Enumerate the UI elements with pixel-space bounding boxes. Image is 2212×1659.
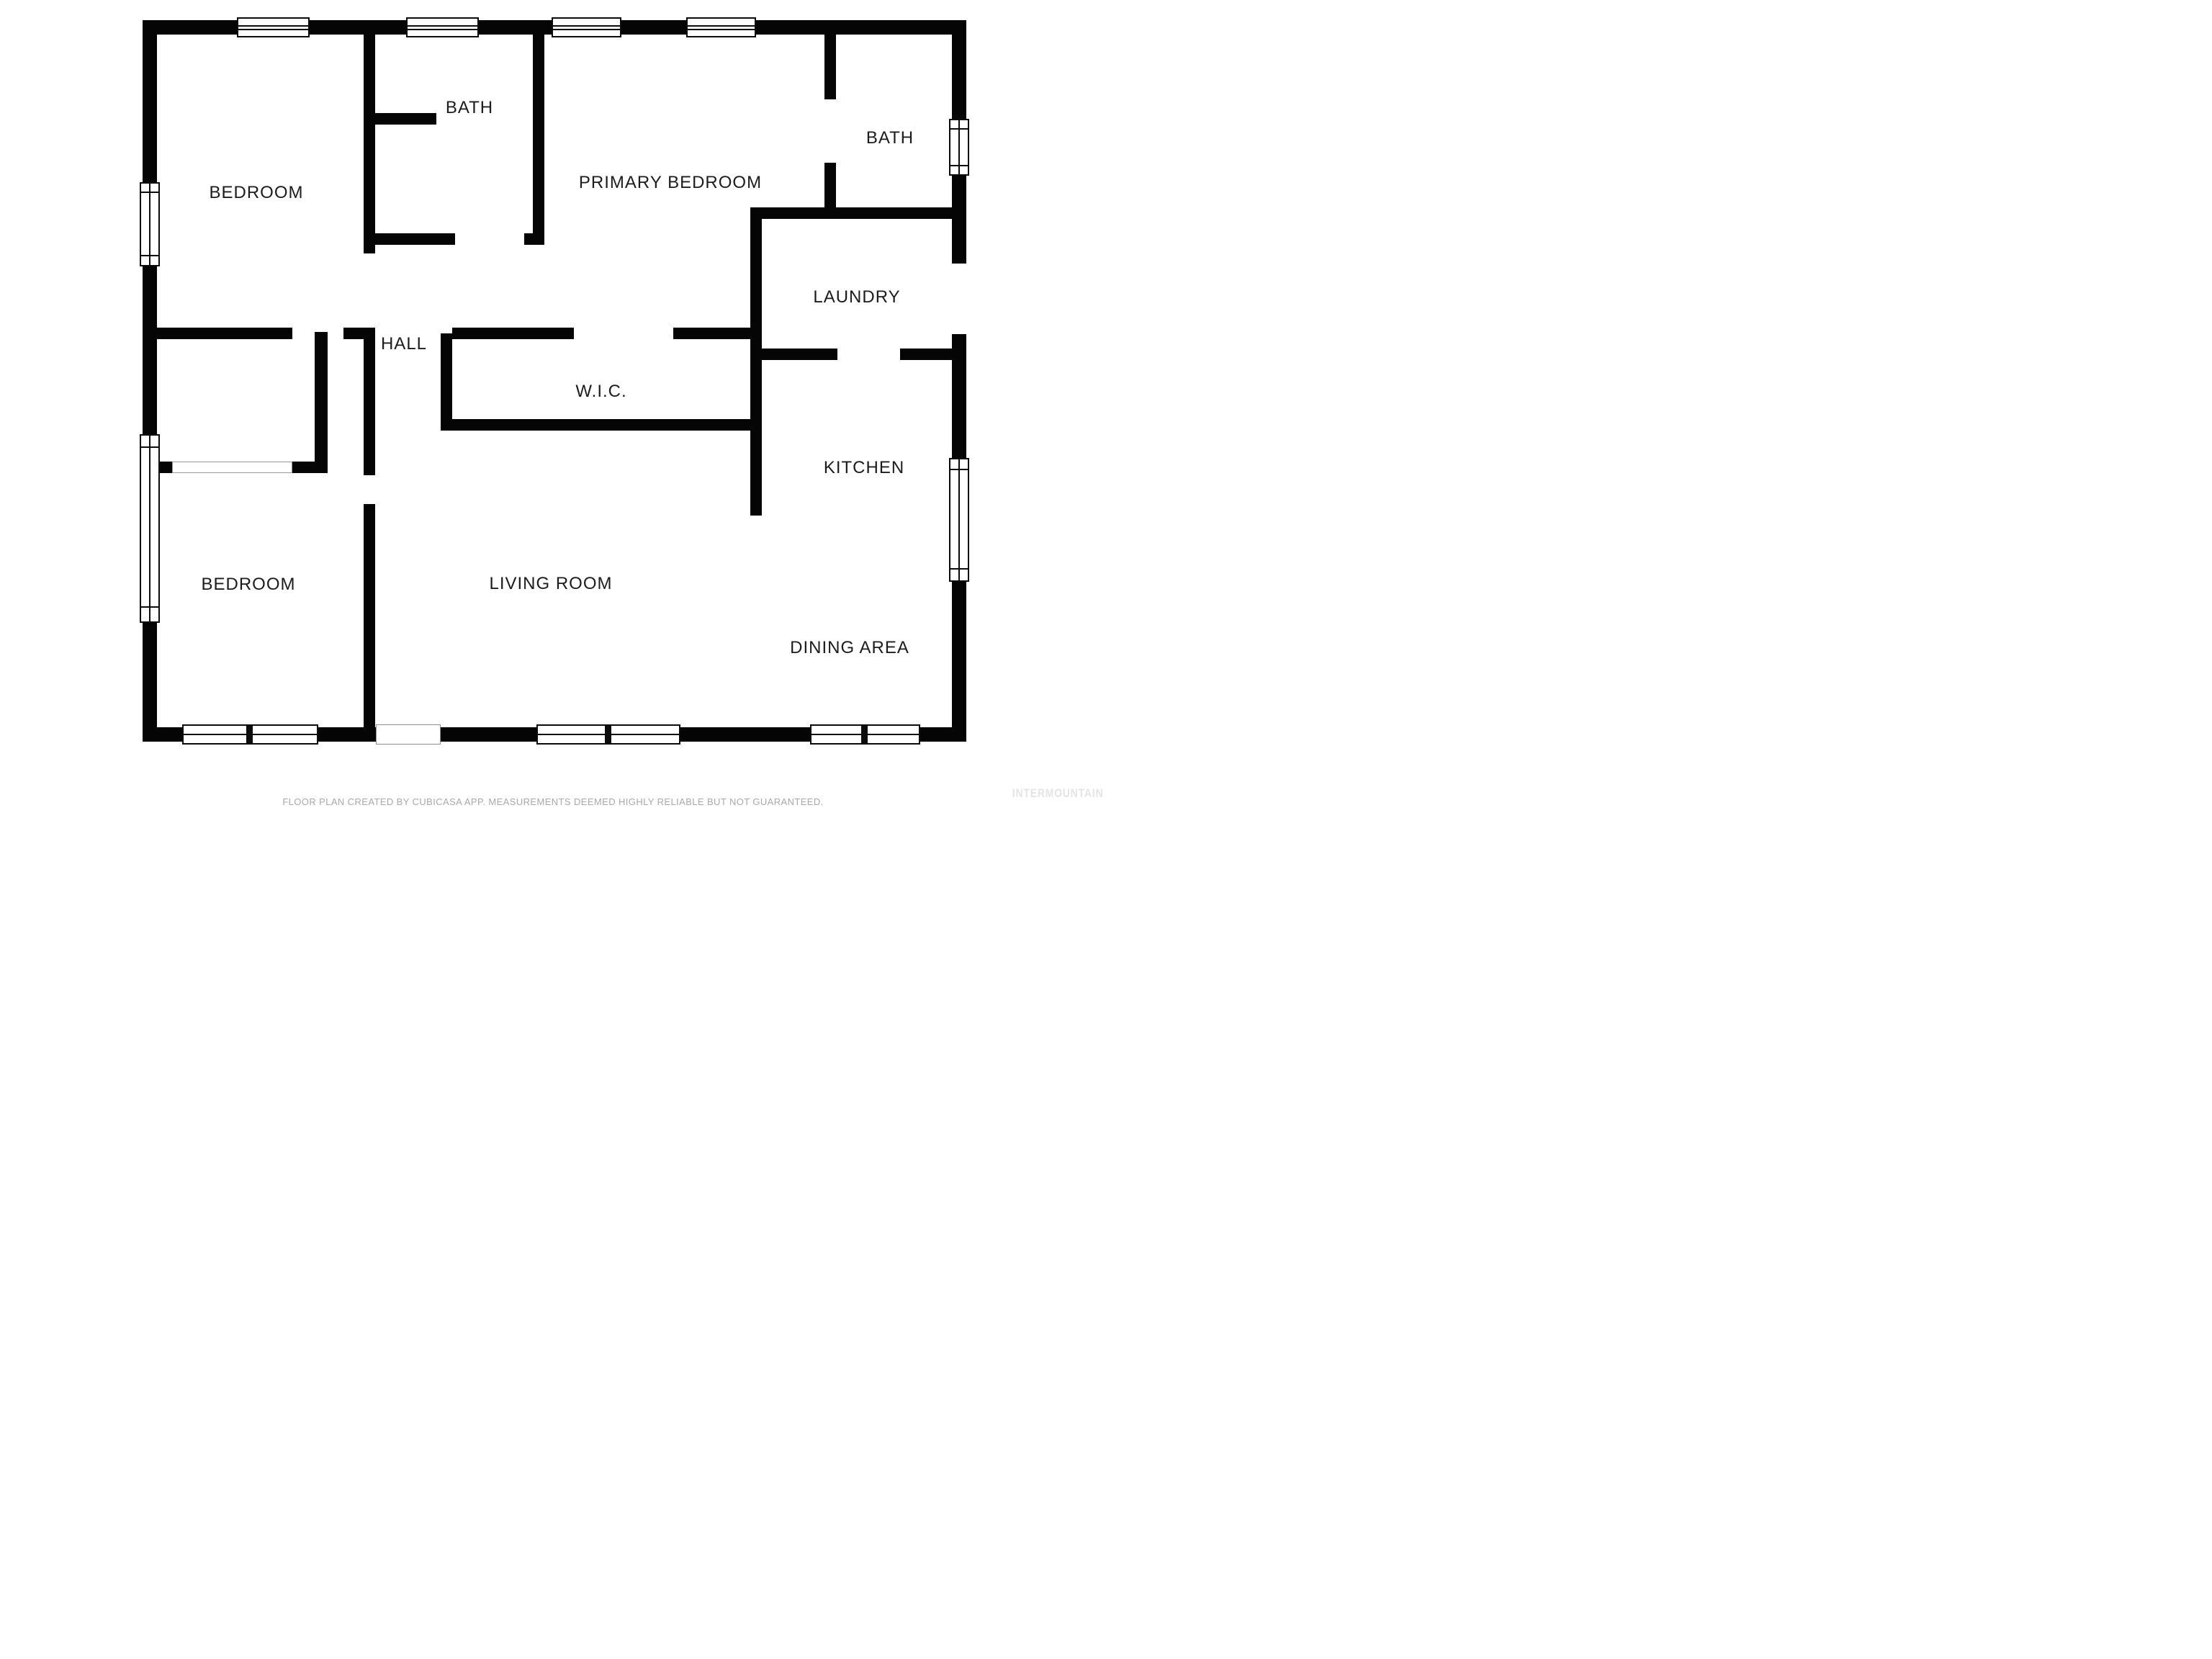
room-label-primary-bedroom: PRIMARY BEDROOM xyxy=(579,173,762,193)
window-symbol-primary-bedroom-1 xyxy=(552,17,621,37)
wall-bedroom-top-bottom-left xyxy=(156,328,292,339)
wall-wic-top-right xyxy=(673,328,762,339)
closet-sliding-door-symbol xyxy=(172,462,292,473)
window-symbol-primary-bedroom-2 xyxy=(686,17,756,37)
window-symbol-bedroom-bottom-left xyxy=(140,434,160,623)
patio-opening-symbol xyxy=(376,724,441,745)
window-symbol-bedroom-top xyxy=(237,17,310,37)
wall-laundry-kitchen-left xyxy=(750,207,762,516)
wall-closet-bottom-right xyxy=(292,462,328,473)
wall-wic-top-left xyxy=(452,328,574,339)
wall-wic-bottom xyxy=(441,419,762,431)
wall-primary-bath2-divider-upper xyxy=(824,20,836,99)
wall-bedroom-top-bottom-right xyxy=(343,328,375,339)
room-label-kitchen: KITCHEN xyxy=(824,458,904,478)
wall-laundry-bottom-left xyxy=(750,349,837,360)
window-symbol-bath-right xyxy=(949,119,969,176)
window-symbol-kitchen-right xyxy=(949,458,969,582)
room-label-living-room: LIVING ROOM xyxy=(489,574,612,594)
wall-laundry-bottom-right xyxy=(900,349,955,360)
wall-closet-right xyxy=(315,332,328,473)
window-symbol-living-room-double xyxy=(536,724,680,745)
wall-living-room-left-upper xyxy=(364,328,375,475)
wall-bath-vanity-stub xyxy=(375,113,436,125)
wall-laundry-top xyxy=(750,207,955,219)
window-symbol-dining-double xyxy=(810,724,920,745)
exterior-wall-left xyxy=(143,20,157,742)
window-symbol-bath-top xyxy=(406,17,479,37)
wall-bath-bottom-left xyxy=(375,233,455,245)
wall-living-room-left-lower xyxy=(364,504,375,727)
wall-bedroom-bath-divider xyxy=(364,35,375,253)
room-label-laundry: LAUNDRY xyxy=(813,287,900,307)
wall-bath-primary-divider xyxy=(533,35,544,245)
room-label-bedroom-top: BEDROOM xyxy=(209,183,303,203)
floor-plan-page: BEDROOM BATH PRIMARY BEDROOM BATH LAUNDR… xyxy=(0,0,1106,829)
room-label-bedroom-bottom: BEDROOM xyxy=(201,575,295,595)
window-symbol-bedroom-bottom-double xyxy=(182,724,318,745)
room-label-bath-top: BATH xyxy=(446,98,493,118)
wall-wic-left xyxy=(441,333,452,428)
wall-bath-bottom-right xyxy=(524,233,544,245)
room-label-hall: HALL xyxy=(381,334,427,354)
room-label-dining-area: DINING AREA xyxy=(790,638,909,658)
room-label-wic: W.I.C. xyxy=(575,382,626,402)
disclaimer-text: FLOOR PLAN CREATED BY CUBICASA APP. MEAS… xyxy=(0,796,1106,807)
room-label-bath-right: BATH xyxy=(866,128,914,148)
watermark-text: INTERMOUNTAIN xyxy=(1012,786,1103,801)
side-entry-opening xyxy=(950,264,968,334)
window-symbol-bedroom-top-left xyxy=(140,182,160,266)
